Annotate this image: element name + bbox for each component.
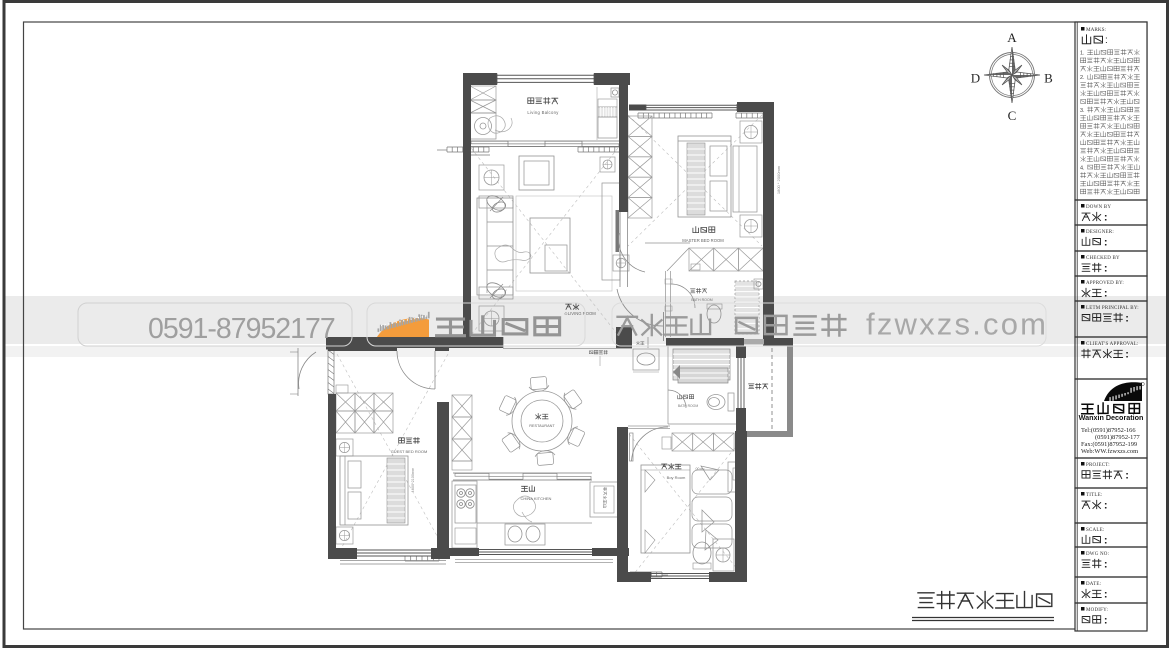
- svg-text:A: A: [1007, 30, 1017, 45]
- svg-text:Wanxin Decoration: Wanxin Decoration: [1079, 413, 1144, 422]
- svg-text::: :: [1125, 313, 1129, 325]
- svg-text:LETM PRINCIPAL BY:: LETM PRINCIPAL BY:: [1086, 306, 1139, 311]
- svg-text::: :: [1104, 263, 1108, 275]
- svg-text::: :: [1104, 237, 1108, 249]
- svg-text:D: D: [971, 71, 980, 86]
- svg-text:RESTAURANT: RESTAURANT: [529, 424, 555, 428]
- svg-text:MARKS:: MARKS:: [1086, 27, 1106, 33]
- svg-text:0591-87952177: 0591-87952177: [148, 313, 335, 345]
- svg-text:1800 * 2000mm: 1800 * 2000mm: [776, 165, 781, 194]
- svg-text:BATH ROOM: BATH ROOM: [691, 298, 713, 302]
- svg-text::: :: [1105, 35, 1108, 46]
- svg-text:2.: 2.: [1080, 75, 1085, 81]
- svg-text:CLIEAT'S APPROVAL:: CLIEAT'S APPROVAL:: [1086, 342, 1139, 347]
- svg-text::: :: [1104, 559, 1108, 571]
- svg-text:BATH ROOM: BATH ROOM: [678, 404, 698, 408]
- svg-text:DWG NO:: DWG NO:: [1086, 552, 1109, 557]
- svg-text:C: C: [1008, 108, 1017, 123]
- svg-text:CHECKED BY: CHECKED BY: [1086, 256, 1120, 261]
- svg-text:GUEST BED ROOM: GUEST BED ROOM: [391, 449, 428, 454]
- svg-text:Fax:(0591)87952-199: Fax:(0591)87952-199: [1081, 441, 1137, 448]
- svg-text:1.: 1.: [1080, 51, 1085, 57]
- svg-text:00 m²: 00 m²: [696, 467, 706, 471]
- svg-text:Living Balcony: Living Balcony: [527, 110, 559, 115]
- svg-text:⊙LIVING ROOM: ⊙LIVING ROOM: [564, 311, 596, 316]
- svg-text:Web:WW.fzwxzs.com: Web:WW.fzwxzs.com: [1081, 448, 1138, 455]
- svg-text:Tel:(0591)87952-166: Tel:(0591)87952-166: [1081, 427, 1136, 434]
- svg-text:Boy Room: Boy Room: [667, 475, 686, 480]
- svg-text::: :: [1125, 349, 1129, 361]
- svg-text:MASTER BED ROOM: MASTER BED ROOM: [682, 238, 724, 243]
- svg-text::: :: [1125, 470, 1129, 482]
- svg-text:APPROVED BY:: APPROVED BY:: [1086, 281, 1124, 286]
- svg-text:DESIGNER:: DESIGNER:: [1086, 230, 1114, 235]
- svg-text:PROJECT:: PROJECT:: [1086, 463, 1110, 468]
- svg-text:B: B: [1044, 71, 1053, 86]
- svg-text:1800*2100mm: 1800*2100mm: [411, 468, 415, 493]
- svg-text::: :: [1104, 212, 1108, 224]
- svg-text:DOWN BY: DOWN BY: [1086, 205, 1111, 210]
- svg-text::: :: [1104, 589, 1108, 601]
- svg-text:(0591)87952-177: (0591)87952-177: [1095, 434, 1141, 441]
- svg-text:MODIFY:: MODIFY:: [1086, 608, 1108, 613]
- svg-text::: :: [1104, 535, 1108, 547]
- svg-text:3.: 3.: [1080, 108, 1085, 114]
- svg-text:DATE:: DATE:: [1086, 582, 1101, 587]
- svg-text:CHINA KITCHEN: CHINA KITCHEN: [521, 496, 552, 501]
- svg-text:TITLE:: TITLE:: [1086, 493, 1102, 498]
- svg-text:4.: 4.: [1080, 165, 1085, 171]
- svg-text:SCALE:: SCALE:: [1086, 528, 1104, 533]
- svg-text::: :: [1104, 288, 1108, 300]
- svg-text::: :: [1104, 500, 1108, 512]
- svg-text:fzwxzs.com: fzwxzs.com: [866, 307, 1048, 342]
- svg-text::: :: [1104, 615, 1108, 627]
